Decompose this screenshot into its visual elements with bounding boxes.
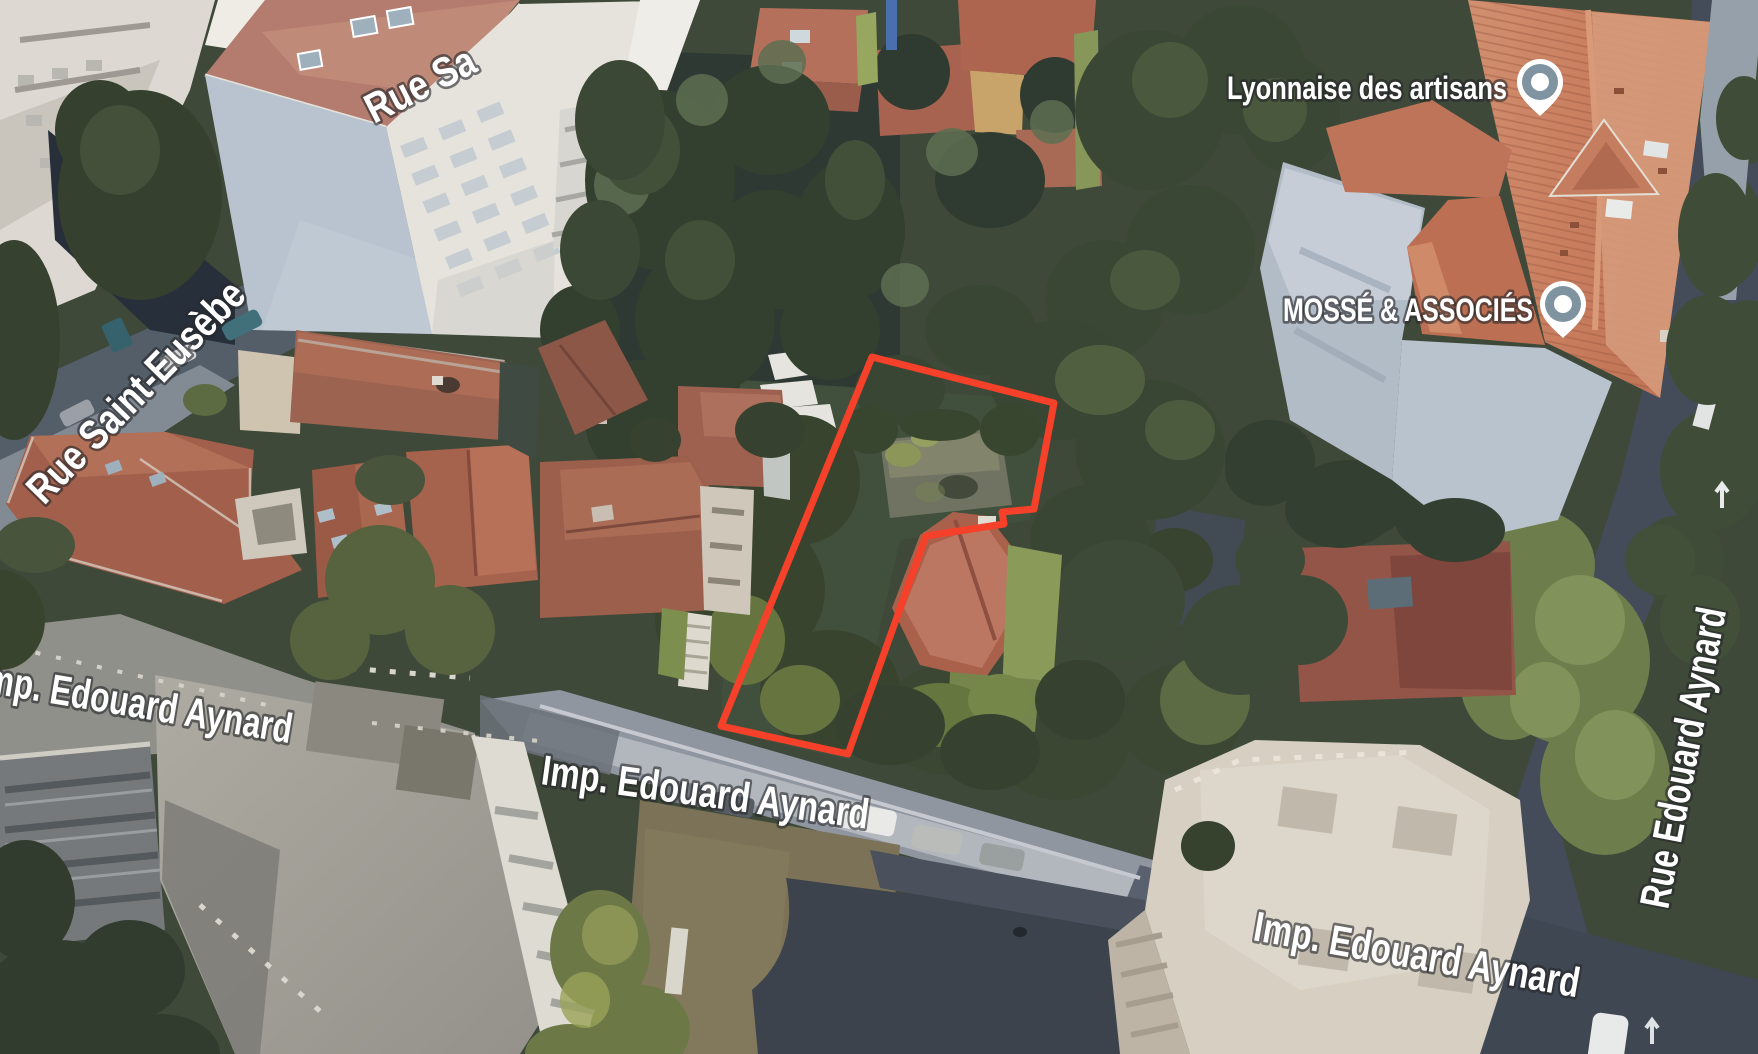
- svg-text:Lyonnaise des artisans: Lyonnaise des artisans: [1227, 70, 1507, 106]
- svg-text:MOSSÉ & ASSOCIÉS: MOSSÉ & ASSOCIÉS: [1283, 292, 1533, 328]
